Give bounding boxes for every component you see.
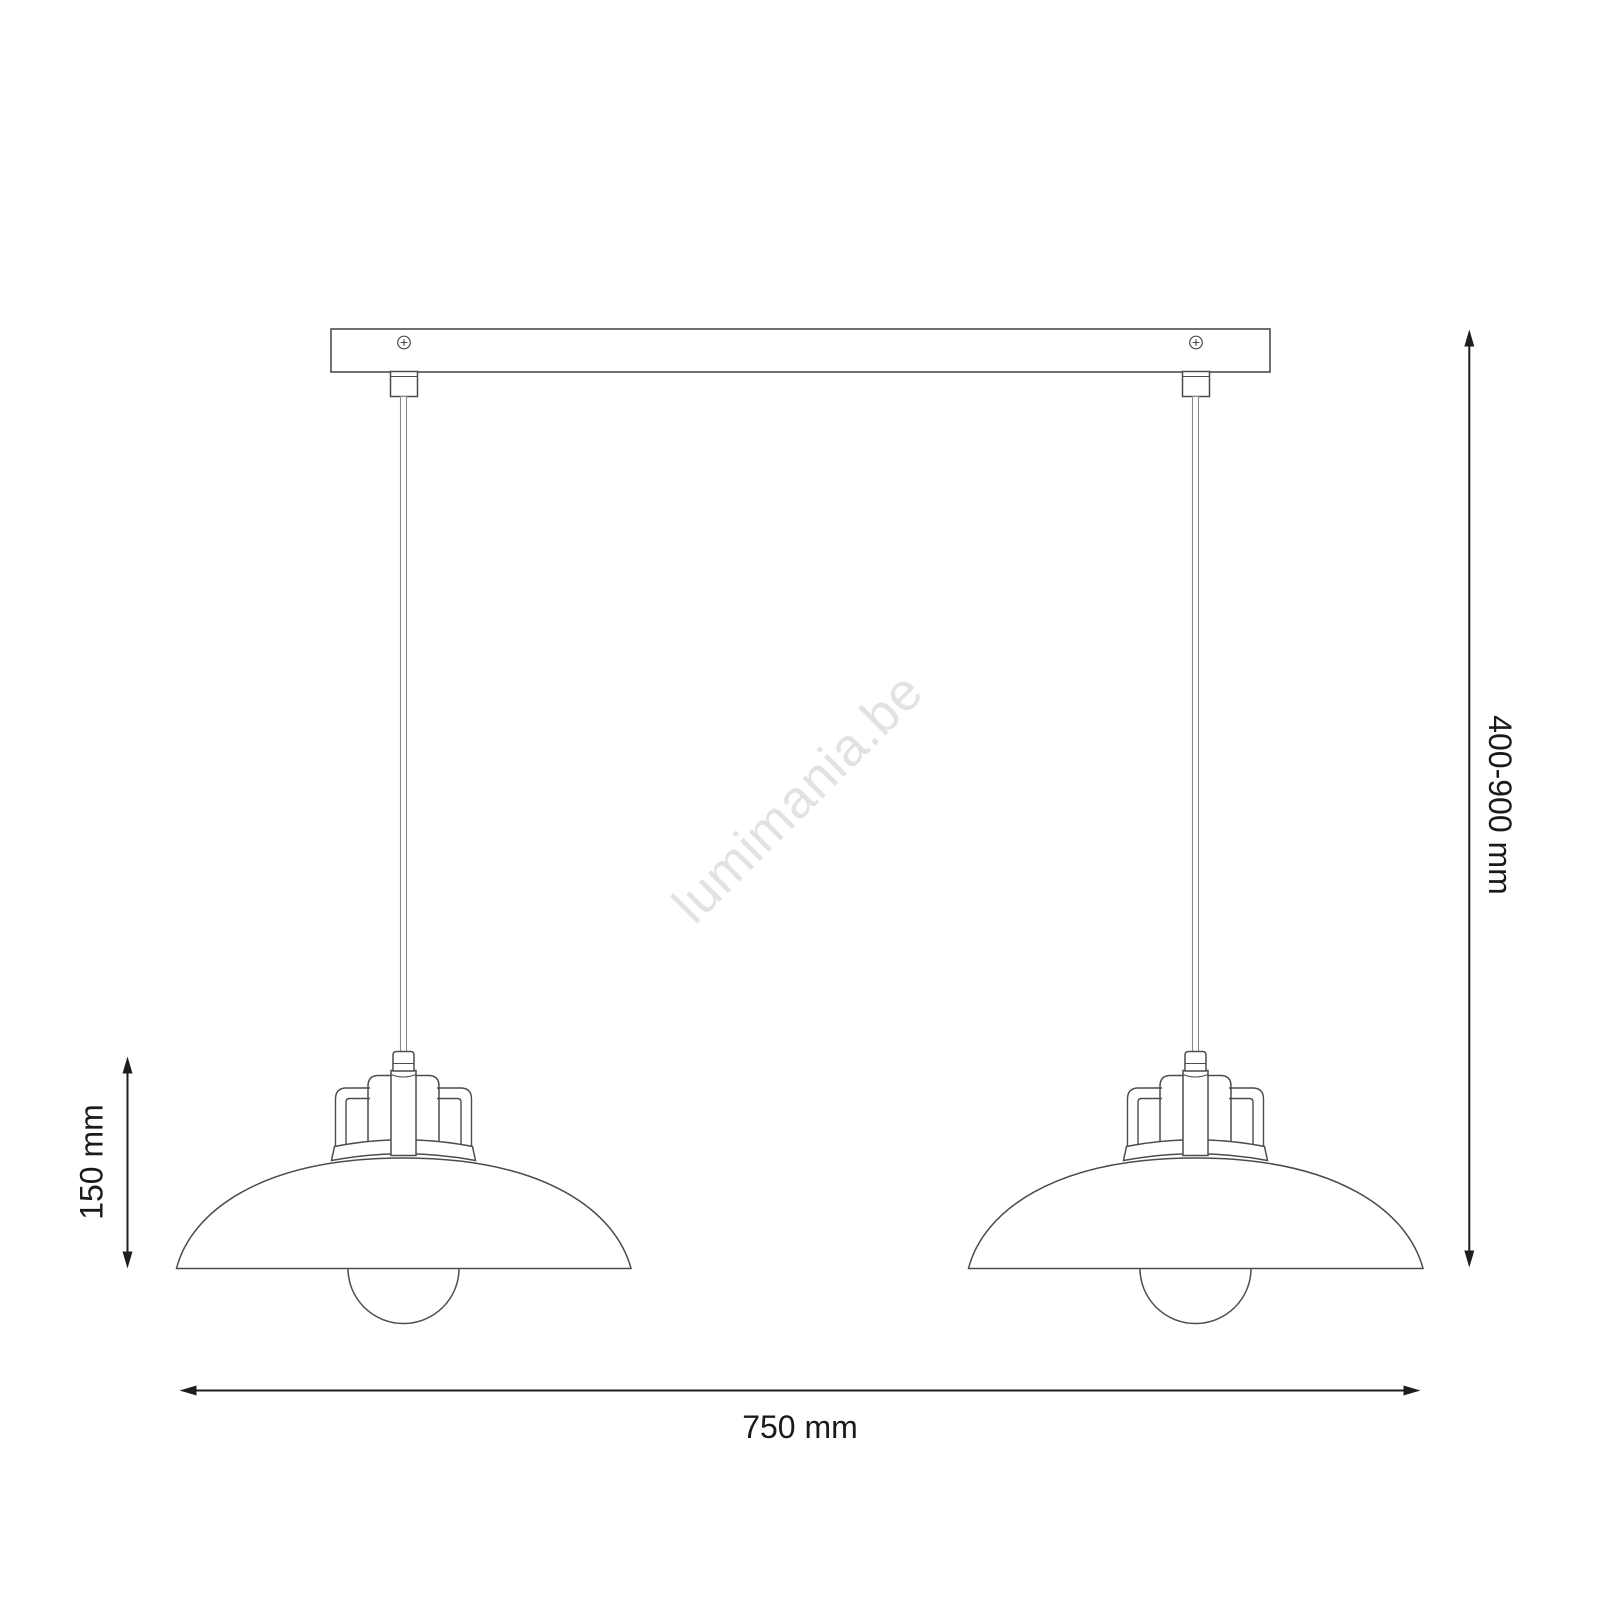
suspension-height-label: 400-900 mm — [1482, 715, 1518, 895]
arrowhead-up-icon — [1464, 330, 1474, 347]
suspension-cord-right — [1193, 397, 1199, 1053]
dimension-total-width: 750 mm — [180, 1386, 1421, 1446]
bar-cord-grip-left — [391, 372, 418, 397]
technical-drawing-canvas: lumimania.be — [0, 0, 1600, 1600]
arrowhead-right-icon — [1404, 1386, 1421, 1396]
bar-cord-grip-right — [1183, 372, 1210, 397]
suspension-cord-left — [401, 397, 407, 1053]
arrowhead-down-icon — [1464, 1251, 1474, 1268]
ceiling-bar — [331, 329, 1270, 372]
shade-height-label: 150 mm — [74, 1104, 110, 1220]
pendant-lamp-left — [177, 1052, 632, 1324]
pendant-lamp-right — [969, 1052, 1424, 1324]
arrowhead-up-icon — [123, 1057, 133, 1074]
arrowhead-down-icon — [123, 1252, 133, 1269]
total-width-label: 750 mm — [742, 1409, 858, 1445]
product-dimension-drawing: lumimania.be — [0, 0, 1600, 1600]
watermark-text: lumimania.be — [661, 661, 934, 934]
dimension-shade-height: 150 mm — [74, 1057, 133, 1269]
dimension-suspension-height: 400-900 mm — [1464, 330, 1518, 1268]
arrowhead-left-icon — [180, 1386, 197, 1396]
